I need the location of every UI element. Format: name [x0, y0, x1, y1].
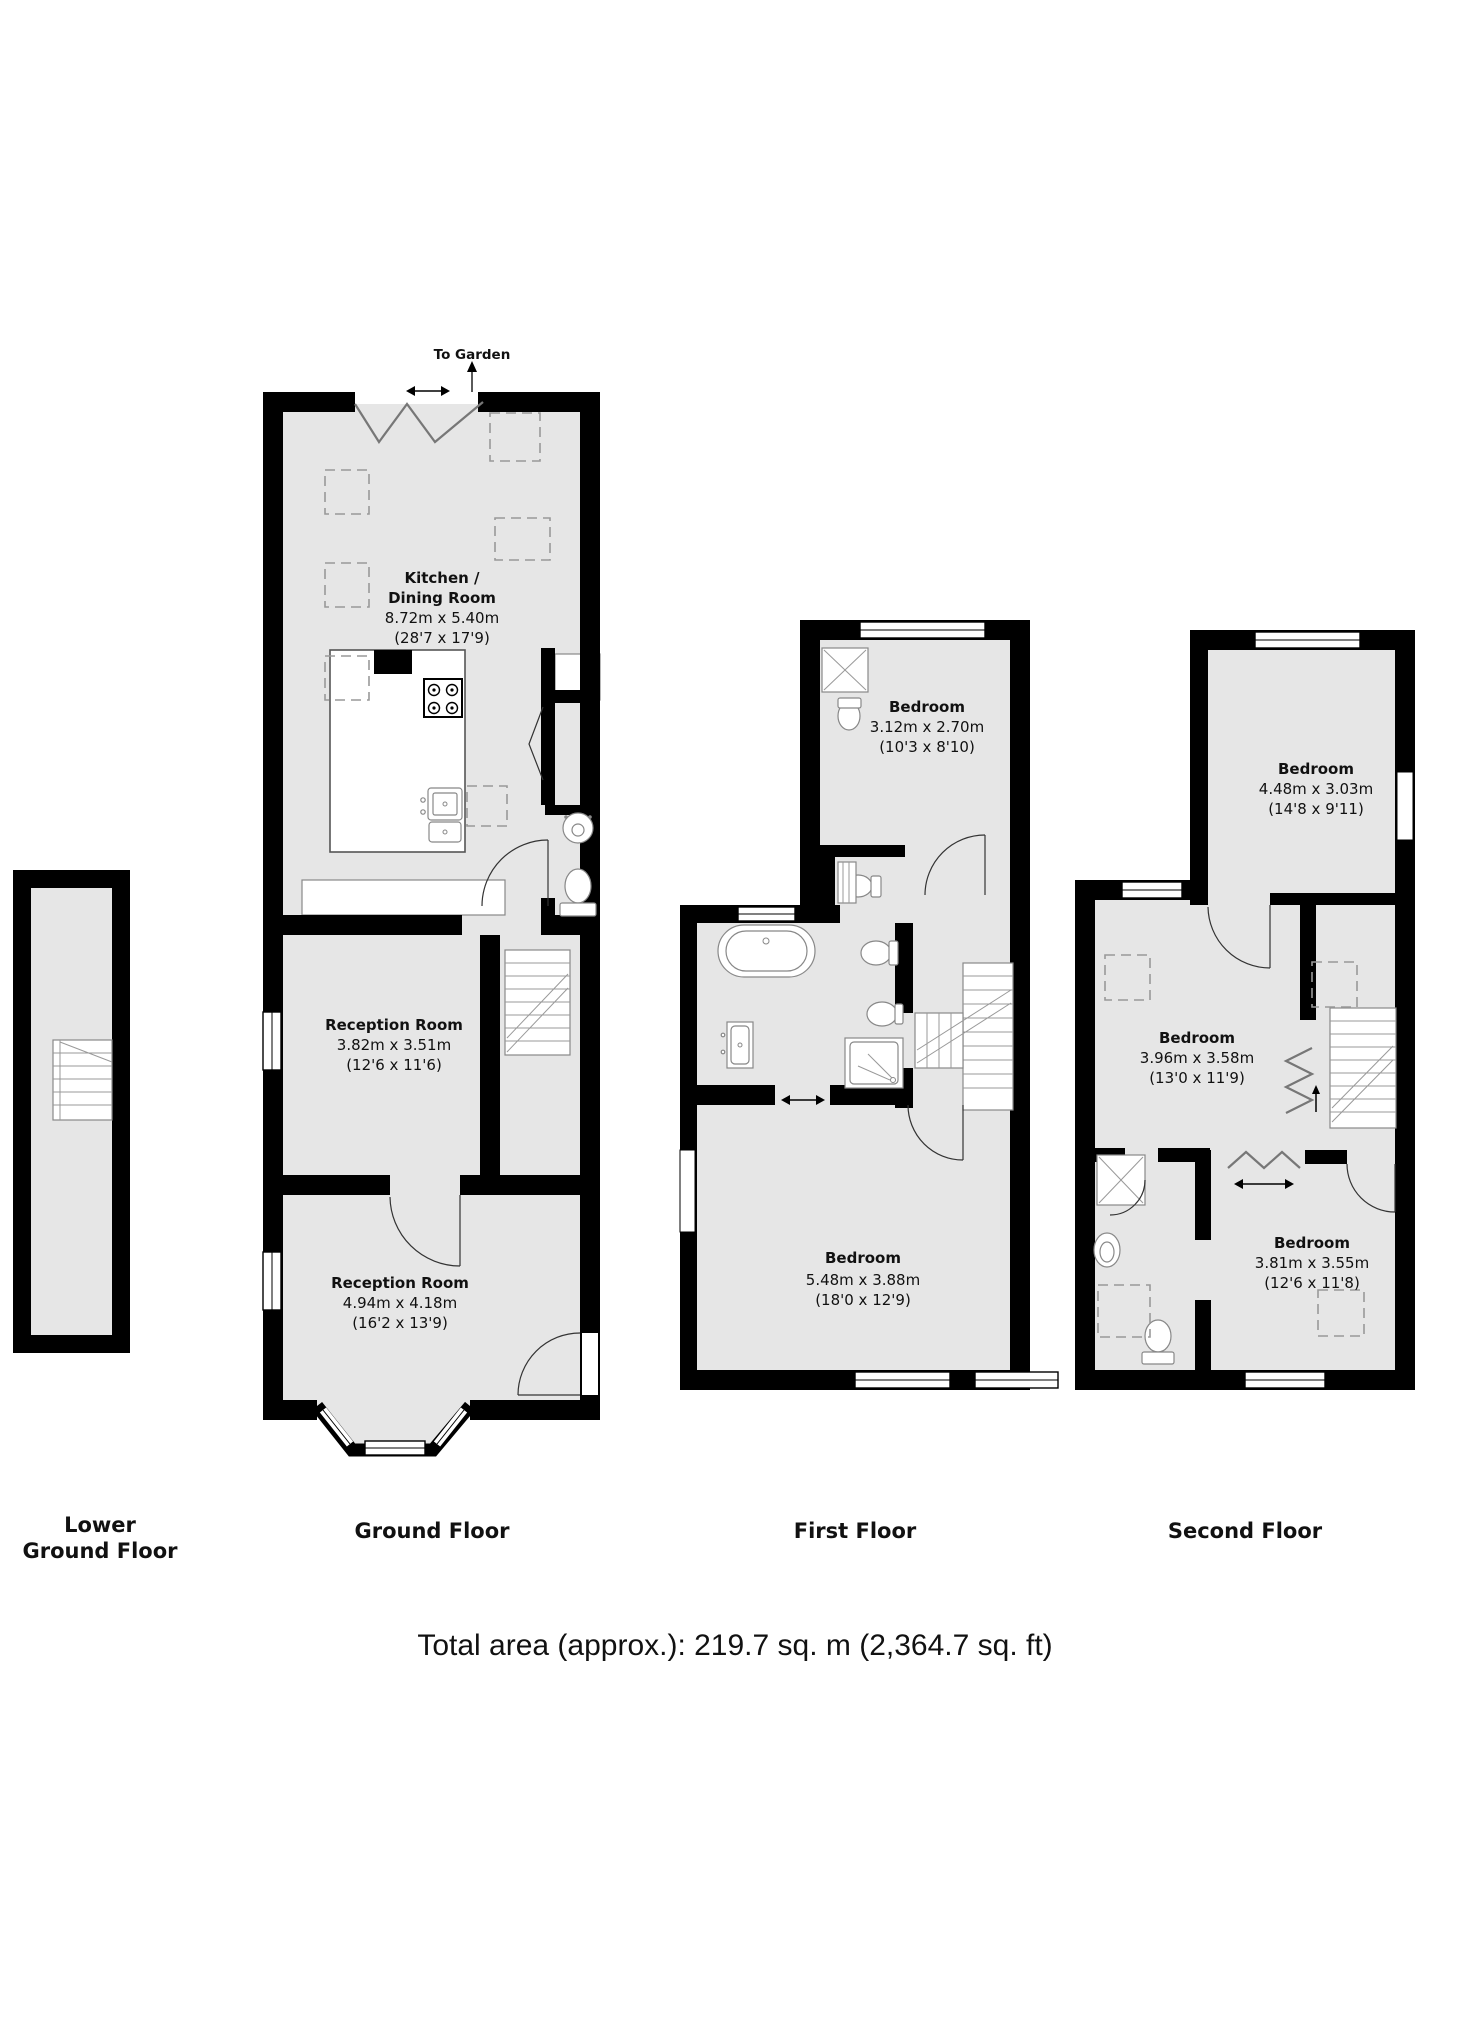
floorplan-page: Lower Ground Floor	[0, 0, 1463, 2025]
second-floor-plan: Bedroom 4.48m x 3.03m (14'8 x 9'11) Bedr…	[1075, 630, 1415, 1543]
room-dims-metric: 3.82m x 3.51m	[337, 1036, 451, 1054]
room-dims-metric: 3.12m x 2.70m	[870, 718, 984, 736]
sf-staircase	[1330, 1008, 1396, 1128]
room-name: Bedroom	[1274, 1234, 1350, 1252]
sf-shower-icon	[1097, 1155, 1145, 1205]
stove-icon	[424, 679, 462, 717]
lgf-floor-label: Lower Ground Floor	[22, 1513, 178, 1563]
floor-label-lower-line2: Ground Floor	[22, 1539, 178, 1563]
lower-ground-floor-plan: Lower Ground Floor	[13, 870, 178, 1563]
kitchen-counter	[302, 880, 505, 915]
room-dims-metric: 5.48m x 3.88m	[806, 1271, 920, 1289]
floor-label-lower-line1: Lower	[64, 1513, 136, 1537]
ff-toilet-icon	[861, 941, 898, 965]
room-dims-imperial: (12'6 x 11'6)	[346, 1056, 442, 1074]
gf-entrance-opening	[582, 1333, 598, 1395]
room-dims-metric: 3.96m x 3.58m	[1140, 1049, 1254, 1067]
sliding-arrow-icon	[406, 386, 450, 396]
room-dims-metric: 3.81m x 3.55m	[1255, 1254, 1369, 1272]
floor-label-ground: Ground Floor	[354, 1519, 510, 1543]
room-name: Bedroom	[1159, 1029, 1235, 1047]
ensuite-shower-icon	[822, 648, 868, 692]
room-dims-metric: 8.72m x 5.40m	[385, 609, 499, 627]
lgf-staircase	[53, 1040, 112, 1120]
room-dims-imperial: (14'8 x 9'11)	[1268, 800, 1364, 818]
ground-floor-plan: To Garden Kitchen / Dining Room 8.72m x …	[263, 347, 600, 1543]
floor-label-second: Second Floor	[1168, 1519, 1323, 1543]
room-dims-imperial: (10'3 x 8'10)	[879, 738, 975, 756]
room-name: Kitchen /	[404, 569, 480, 587]
room-dims-metric: 4.48m x 3.03m	[1259, 780, 1373, 798]
bidet-icon	[867, 1002, 903, 1026]
first-floor-plan: Bedroom 3.12m x 2.70m (10'3 x 8'10) Bedr…	[680, 620, 1058, 1543]
room-name: Bedroom	[889, 698, 965, 716]
room-name: Dining Room	[388, 589, 496, 607]
floor-plan-svg: Lower Ground Floor	[0, 0, 1463, 2025]
room-dims-imperial: (13'0 x 11'9)	[1149, 1069, 1245, 1087]
room-name: Bedroom	[1278, 760, 1354, 778]
room-name: Bedroom	[825, 1249, 901, 1267]
to-garden-label: To Garden	[434, 347, 511, 363]
sf-basin-icon	[1094, 1233, 1120, 1267]
ensuite-toilet-icon	[838, 698, 861, 730]
ff-shower-icon	[845, 1038, 903, 1088]
room-dims-imperial: (18'0 x 12'9)	[815, 1291, 911, 1309]
room-dims-imperial: (16'2 x 13'9)	[352, 1314, 448, 1332]
gf-staircase	[505, 950, 570, 1055]
room-name: Reception Room	[325, 1016, 463, 1034]
room-dims-metric: 4.94m x 4.18m	[343, 1294, 457, 1312]
sf-main-interior	[1085, 890, 1403, 1380]
sf-toilet-icon	[1142, 1320, 1174, 1364]
gf-wc-basin-icon	[563, 813, 593, 843]
bathtub-icon	[718, 925, 815, 977]
to-garden-arrow-icon	[467, 361, 477, 392]
floor-label-first: First Floor	[794, 1519, 917, 1543]
room-dims-imperial: (28'7 x 17'9)	[394, 629, 490, 647]
room-name: Reception Room	[331, 1274, 469, 1292]
room-dims-imperial: (12'6 x 11'8)	[1264, 1274, 1360, 1292]
total-area-text: Total area (approx.): 219.7 sq. m (2,364…	[417, 1629, 1052, 1662]
